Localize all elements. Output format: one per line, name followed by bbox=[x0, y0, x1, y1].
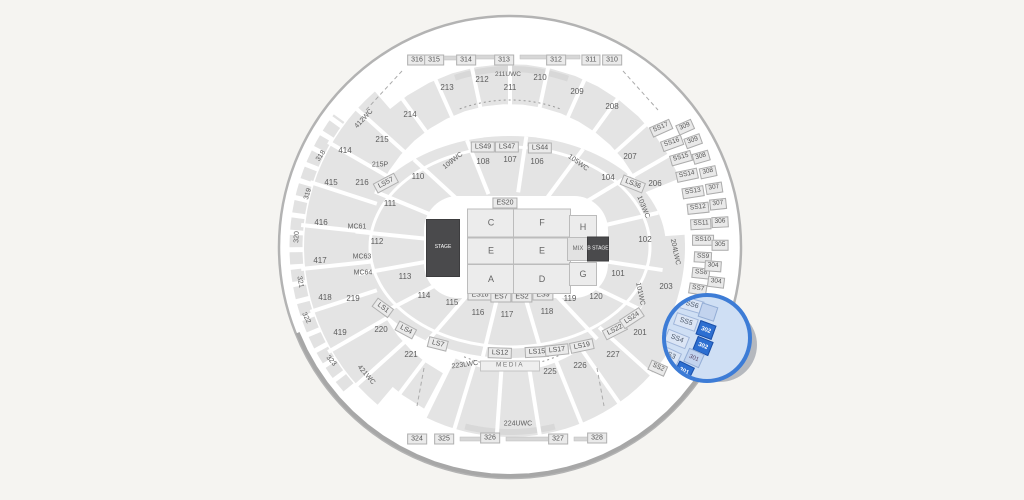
section-mc64[interactable]: MC64 bbox=[354, 270, 373, 277]
section-112[interactable]: 112 bbox=[371, 238, 384, 246]
mix-label: MIX bbox=[567, 237, 589, 261]
section-c[interactable]: C bbox=[467, 209, 515, 238]
section-d[interactable]: D bbox=[513, 264, 571, 294]
section-111[interactable]: 111 bbox=[384, 200, 396, 208]
section-102[interactable]: 102 bbox=[638, 236, 651, 244]
section-120[interactable]: 120 bbox=[589, 293, 602, 301]
section-418[interactable]: 418 bbox=[318, 294, 331, 302]
section-206[interactable]: 206 bbox=[648, 180, 661, 188]
section-101[interactable]: 101 bbox=[611, 270, 624, 278]
b-stage-label: B STAGE bbox=[587, 237, 609, 262]
section-201[interactable]: 201 bbox=[633, 329, 646, 337]
section-304[interactable]: 304 bbox=[704, 260, 722, 272]
section-f[interactable]: F bbox=[513, 209, 571, 238]
magnifier[interactable]: SS6SS5SS4SS3302302301301 bbox=[662, 293, 752, 383]
section-e[interactable]: E bbox=[513, 238, 571, 265]
section-116[interactable]: 116 bbox=[472, 309, 485, 317]
section-215[interactable]: 215 bbox=[375, 136, 388, 144]
section-104[interactable]: 104 bbox=[601, 174, 614, 182]
section-209[interactable]: 209 bbox=[570, 88, 583, 96]
section-305[interactable]: 305 bbox=[712, 240, 729, 251]
section-a[interactable]: A bbox=[467, 264, 515, 294]
section-415[interactable]: 415 bbox=[324, 179, 337, 187]
section-315[interactable]: 315 bbox=[424, 55, 444, 66]
section-224uwc[interactable]: 224UWC bbox=[504, 421, 532, 428]
section-414[interactable]: 414 bbox=[338, 147, 351, 155]
section-307[interactable]: 307 bbox=[709, 198, 727, 210]
section-313[interactable]: 313 bbox=[494, 55, 514, 66]
section-ls47[interactable]: LS47 bbox=[495, 142, 519, 153]
section-ls12[interactable]: LS12 bbox=[488, 347, 513, 359]
section-213[interactable]: 213 bbox=[440, 84, 453, 92]
section-324[interactable]: 324 bbox=[407, 434, 427, 445]
section-115[interactable]: 115 bbox=[446, 299, 459, 307]
section-221[interactable]: 221 bbox=[404, 351, 417, 359]
stage-label: STAGE bbox=[426, 219, 460, 277]
arena-seating-map: 3163153143133123113103243253263273282142… bbox=[0, 0, 1024, 500]
section-214[interactable]: 214 bbox=[403, 111, 416, 119]
section-306[interactable]: 306 bbox=[711, 216, 728, 227]
magnifier-section-block[interactable] bbox=[698, 302, 719, 322]
section-108[interactable]: 108 bbox=[476, 158, 489, 166]
section-325[interactable]: 325 bbox=[434, 434, 454, 445]
section-106[interactable]: 106 bbox=[530, 158, 543, 166]
section-ls44[interactable]: LS44 bbox=[528, 143, 552, 154]
section-210[interactable]: 210 bbox=[533, 74, 546, 82]
section-mc61[interactable]: MC61 bbox=[348, 224, 367, 231]
section-304[interactable]: 304 bbox=[707, 276, 725, 288]
section-311[interactable]: 311 bbox=[581, 55, 600, 66]
section-114[interactable]: 114 bbox=[418, 292, 431, 300]
section-327[interactable]: 327 bbox=[548, 434, 568, 445]
section-215p[interactable]: 215P bbox=[372, 162, 388, 169]
section-119[interactable]: 119 bbox=[564, 295, 577, 303]
section-419[interactable]: 419 bbox=[333, 329, 346, 337]
section-220[interactable]: 220 bbox=[374, 326, 387, 334]
section-219[interactable]: 219 bbox=[346, 295, 359, 303]
section-117[interactable]: 117 bbox=[501, 311, 514, 319]
section-g[interactable]: G bbox=[569, 262, 597, 286]
section-h[interactable]: H bbox=[569, 215, 597, 239]
section-227[interactable]: 227 bbox=[606, 351, 619, 359]
section-416[interactable]: 416 bbox=[314, 219, 327, 227]
section-211uwc[interactable]: 211UWC bbox=[495, 72, 521, 79]
section-e[interactable]: E bbox=[467, 238, 515, 265]
section-216[interactable]: 216 bbox=[355, 179, 368, 187]
magnifier-section-ss5-1[interactable]: SS5 bbox=[673, 312, 699, 332]
section-417[interactable]: 417 bbox=[313, 257, 326, 265]
section-113[interactable]: 113 bbox=[399, 273, 412, 281]
section-211[interactable]: 211 bbox=[504, 84, 517, 92]
section-ls49[interactable]: LS49 bbox=[471, 142, 495, 153]
section-314[interactable]: 314 bbox=[456, 55, 476, 66]
section-225[interactable]: 225 bbox=[543, 368, 556, 376]
section-326[interactable]: 326 bbox=[480, 433, 500, 444]
section-es20[interactable]: ES20 bbox=[492, 198, 517, 209]
section-312[interactable]: 312 bbox=[546, 55, 566, 66]
section-mc63[interactable]: MC63 bbox=[353, 254, 372, 261]
section-ss11[interactable]: SS11 bbox=[690, 218, 712, 230]
section-212[interactable]: 212 bbox=[475, 76, 488, 84]
section-203[interactable]: 203 bbox=[659, 283, 672, 291]
section-118[interactable]: 118 bbox=[541, 308, 554, 316]
section-310[interactable]: 310 bbox=[602, 55, 622, 66]
section-226[interactable]: 226 bbox=[573, 362, 586, 370]
section-208[interactable]: 208 bbox=[605, 103, 618, 111]
section-328[interactable]: 328 bbox=[587, 433, 607, 444]
section-207[interactable]: 207 bbox=[623, 153, 636, 161]
section-320[interactable]: 320 bbox=[293, 231, 300, 243]
media-label: MEDIA bbox=[480, 361, 540, 372]
section-110[interactable]: 110 bbox=[412, 173, 425, 181]
section-107[interactable]: 107 bbox=[503, 156, 516, 164]
